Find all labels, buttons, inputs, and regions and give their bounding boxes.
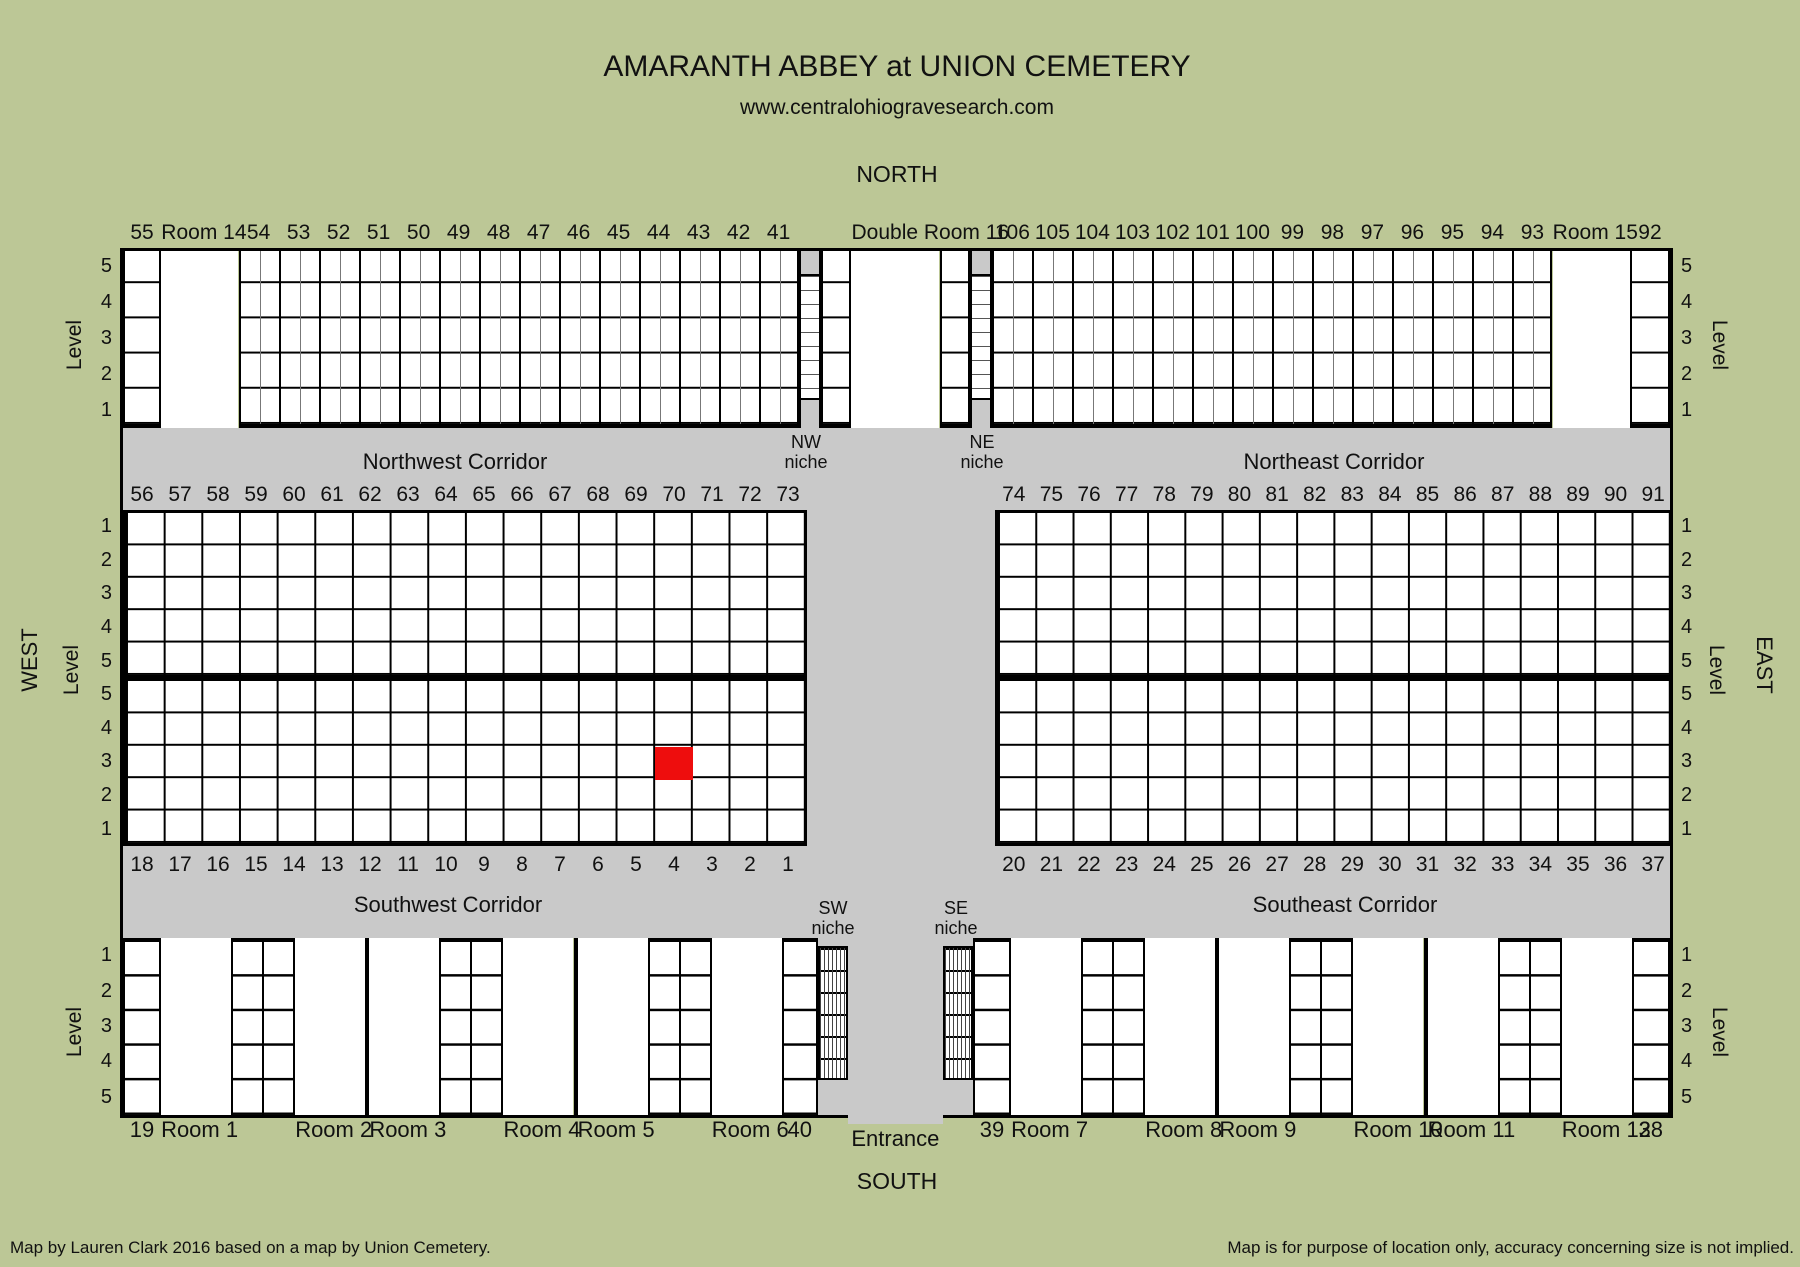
column-number: 92 — [1630, 220, 1670, 248]
column-number: 82 — [1296, 482, 1334, 508]
spacer — [231, 1115, 295, 1145]
north-crypt-column — [559, 248, 599, 428]
room-14-unit: Room 14 — [161, 220, 238, 428]
crypt-column — [940, 248, 970, 428]
spacer — [648, 1115, 712, 1145]
level-number: 2 — [86, 356, 116, 392]
column-number: 85 — [1409, 482, 1447, 508]
north-crypt-column — [1472, 248, 1512, 428]
crypt-column-unit — [821, 220, 851, 428]
level-number: 3 — [86, 1009, 116, 1044]
north-crypt-column — [1112, 248, 1152, 428]
column-number: 76 — [1070, 482, 1108, 508]
spacer — [1498, 1115, 1562, 1145]
room-2-unit: Room 2 — [295, 938, 365, 1145]
column-number: 39 — [973, 1115, 1011, 1145]
level-number: 4 — [1677, 284, 1707, 320]
level-number: 2 — [1677, 973, 1707, 1008]
footer-disclaimer: Map is for purpose of location only, acc… — [1227, 1238, 1794, 1258]
column-number: 41 — [759, 220, 799, 248]
level-label-north-left: Level — [63, 300, 87, 390]
sw-niche-line1: SW — [793, 898, 873, 918]
column-number: 37 — [1634, 852, 1672, 878]
north-crypt-column-unit: 5453525150494847464544434241 — [239, 220, 799, 428]
crypt-column-92-unit: 92 — [1630, 220, 1670, 428]
level-number: 1 — [1677, 392, 1707, 428]
column-number: 40 — [782, 1115, 818, 1145]
column-number: 32 — [1446, 852, 1484, 878]
entrance-label: Entrance — [848, 1124, 943, 1154]
ne-niche-column-unit — [970, 220, 992, 428]
room-7 — [1011, 938, 1081, 1115]
level-number: 3 — [86, 320, 116, 356]
room-8-unit: Room 8 — [1145, 938, 1215, 1145]
room-label: Double Room 16 — [851, 220, 939, 248]
column-number: 56 — [123, 482, 161, 508]
nw-south-bank — [126, 681, 804, 843]
niche-hatched-strip — [818, 946, 848, 1080]
north-crypt-column — [239, 248, 279, 428]
building-north-wall — [120, 248, 1673, 251]
level-number: 3 — [86, 577, 116, 611]
column-number: 38 — [1632, 1115, 1670, 1145]
se-niche-column — [943, 938, 973, 1115]
column-number: 61 — [313, 482, 351, 508]
niche-cap-bottom — [801, 400, 819, 428]
spacer — [943, 1115, 973, 1145]
crypt-column-40-unit: 40 — [782, 938, 818, 1145]
north-crypt-column — [279, 248, 319, 428]
column-number: 63 — [389, 482, 427, 508]
column-number: 67 — [541, 482, 579, 508]
column-number: 15 — [237, 852, 275, 878]
column-number: 51 — [359, 220, 399, 248]
column-number: 18 — [123, 852, 161, 878]
level-number: 4 — [86, 712, 116, 746]
southwest-corridor-label: Southwest Corridor — [198, 891, 698, 919]
ne-niche-column — [970, 248, 992, 428]
north-crypt-column — [359, 248, 399, 428]
middle-levels-left: 1234554321 — [86, 510, 116, 846]
level-number: 2 — [86, 973, 116, 1008]
room-1 — [161, 938, 231, 1115]
column-number — [940, 220, 970, 248]
dcol-unit — [1081, 938, 1145, 1145]
ne-south-bank — [998, 681, 1669, 843]
column-number: 35 — [1559, 852, 1597, 878]
crypt-double-column — [1289, 938, 1353, 1115]
level-label-middle-left: Level — [60, 625, 84, 715]
column-number: 28 — [1296, 852, 1334, 878]
level-number: 5 — [86, 678, 116, 712]
column-number: 101 — [1192, 220, 1232, 248]
column-number: 16 — [199, 852, 237, 878]
column-number: 10 — [427, 852, 465, 878]
column-number: 3 — [693, 852, 731, 878]
column-number: 62 — [351, 482, 389, 508]
column-number: 50 — [399, 220, 439, 248]
north-levels-left: 54321 — [86, 248, 116, 428]
north-crypt-column — [1072, 248, 1112, 428]
northwest-corridor-label: Northwest Corridor — [205, 448, 705, 476]
level-number: 3 — [1677, 745, 1707, 779]
column-number: 13 — [313, 852, 351, 878]
column-number: 11 — [389, 852, 427, 878]
room-10-unit: Room 10 — [1353, 938, 1423, 1145]
column-number: 70 — [655, 482, 693, 508]
level-label-south-right: Level — [1707, 987, 1731, 1077]
room-label: Room 3 — [369, 1115, 439, 1145]
column-number: 71 — [693, 482, 731, 508]
ne-niche-line2: niche — [942, 452, 1022, 472]
south-levels-right: 12345 — [1677, 938, 1707, 1115]
level-number: 1 — [1677, 812, 1707, 846]
northeast-crypt-grid — [995, 510, 1672, 846]
website-url: www.centralohiogravesearch.com — [0, 96, 1794, 120]
column-number: 8 — [503, 852, 541, 878]
north-crypt-column — [759, 248, 799, 428]
dcol-unit — [1289, 938, 1353, 1145]
column-number: 17 — [161, 852, 199, 878]
room-10 — [1353, 938, 1423, 1115]
column-number: 68 — [579, 482, 617, 508]
northeast-corridor-label: Northeast Corridor — [1084, 448, 1584, 476]
crypt-column-38 — [1632, 938, 1670, 1115]
room-5 — [578, 938, 648, 1115]
column-number: 48 — [479, 220, 519, 248]
room-label: Room 14 — [161, 220, 238, 248]
room-11 — [1428, 938, 1498, 1115]
spacer — [1289, 1115, 1353, 1145]
level-number: 1 — [86, 510, 116, 544]
crypt-double-column — [1498, 938, 1562, 1115]
room-15 — [1553, 248, 1630, 428]
nw-niche-line1: NW — [766, 432, 846, 452]
level-number: 4 — [1677, 611, 1707, 645]
column-number: 66 — [503, 482, 541, 508]
column-number: 91 — [1634, 482, 1672, 508]
level-number: 5 — [86, 1080, 116, 1115]
central-hall — [807, 428, 995, 938]
dcol-unit — [231, 938, 295, 1145]
cemetery-map: AMARANTH ABBEY at UNION CEMETERY www.cen… — [0, 0, 1800, 1267]
column-number: 73 — [769, 482, 807, 508]
level-number: 5 — [1677, 644, 1707, 678]
room-3-unit: Room 3 — [369, 938, 439, 1145]
north-crypt-columns — [992, 248, 1552, 428]
nw-column-numbers: 565758596061626364656667686970717273 — [123, 482, 807, 508]
level-number: 1 — [86, 812, 116, 846]
level-label-middle-right: Level — [1704, 625, 1728, 715]
column-number: 49 — [439, 220, 479, 248]
column-number: 87 — [1484, 482, 1522, 508]
se-niche-column-unit — [943, 938, 973, 1145]
room-2 — [295, 938, 365, 1115]
niche-cells — [972, 274, 990, 400]
column-number: 58 — [199, 482, 237, 508]
sw-column-numbers: 181716151413121110987654321 — [123, 852, 807, 878]
north-crypt-column — [439, 248, 479, 428]
room-8 — [1145, 938, 1215, 1115]
room-15-unit: Room 15 — [1553, 220, 1630, 428]
niche-hatched-strip — [943, 946, 973, 1080]
se-niche-line2: niche — [916, 918, 996, 938]
crypt-column-19-unit: 19 — [123, 938, 161, 1145]
level-number: 4 — [86, 1044, 116, 1079]
room-label: Room 6 — [712, 1115, 782, 1145]
crypt-column-19 — [123, 938, 161, 1115]
column-number: 45 — [599, 220, 639, 248]
column-number: 100 — [1232, 220, 1272, 248]
sw-niche-column-unit — [818, 938, 848, 1145]
crypt-double-column — [231, 938, 295, 1115]
level-number: 3 — [86, 745, 116, 779]
room-12 — [1562, 938, 1632, 1115]
column-number: 47 — [519, 220, 559, 248]
level-number: 3 — [1677, 577, 1707, 611]
level-number: 2 — [1677, 779, 1707, 813]
column-number: 103 — [1112, 220, 1152, 248]
column-number: 55 — [123, 220, 161, 248]
column-number: 64 — [427, 482, 465, 508]
column-number: 65 — [465, 482, 503, 508]
column-number: 1 — [769, 852, 807, 878]
ne-north-bank — [998, 513, 1669, 675]
compass-west: WEST — [18, 615, 42, 705]
page-title: AMARANTH ABBEY at UNION CEMETERY — [0, 50, 1794, 84]
north-crypt-column — [479, 248, 519, 428]
niche-cap-top — [801, 248, 819, 274]
niche-cap-top — [972, 248, 990, 274]
north-crypt-band: 55Room 145453525150494847464544434241Dou… — [123, 220, 1670, 428]
se-niche-line1: SE — [916, 898, 996, 918]
column-number: 59 — [237, 482, 275, 508]
column-number: 19 — [123, 1115, 161, 1145]
column-number: 30 — [1371, 852, 1409, 878]
column-number — [821, 220, 851, 248]
nw-niche-column — [799, 248, 821, 428]
ne-niche-line1: NE — [942, 432, 1022, 452]
room-label: Room 12 — [1562, 1115, 1632, 1145]
building-south-wall-west — [120, 1115, 848, 1118]
niche-cap-bottom — [972, 400, 990, 428]
spacer — [799, 220, 821, 248]
room-11-unit: Room 11 — [1428, 938, 1498, 1145]
crypt-double-column — [1081, 938, 1145, 1115]
north-crypt-column — [1272, 248, 1312, 428]
room-label: Room 4 — [503, 1115, 573, 1145]
spacer — [439, 1115, 503, 1145]
column-number: 31 — [1409, 852, 1447, 878]
column-number: 29 — [1333, 852, 1371, 878]
room-7-unit: Room 7 — [1011, 938, 1081, 1145]
compass-south: SOUTH — [0, 1168, 1794, 1195]
level-number: 5 — [86, 248, 116, 284]
column-number: 20 — [995, 852, 1033, 878]
north-crypt-column — [1232, 248, 1272, 428]
column-number: 57 — [161, 482, 199, 508]
column-number: 54 — [239, 220, 279, 248]
north-crypt-column — [599, 248, 639, 428]
column-numbers: 10610510410310210110099989796959493 — [992, 220, 1552, 248]
spacer — [818, 1115, 848, 1145]
column-number: 90 — [1597, 482, 1635, 508]
column-number: 74 — [995, 482, 1033, 508]
building-west-wall — [120, 248, 123, 1118]
footer-credit: Map by Lauren Clark 2016 based on a map … — [10, 1238, 491, 1258]
crypt-column-92 — [1630, 248, 1670, 428]
crypt-double-column — [439, 938, 503, 1115]
entrance-passage-unit: Entrance — [848, 938, 943, 1154]
crypt-double-column — [648, 938, 712, 1115]
north-crypt-column — [319, 248, 359, 428]
column-number: 44 — [639, 220, 679, 248]
double-room-16 — [851, 248, 939, 428]
room-label: Room 10 — [1353, 1115, 1423, 1145]
room-9-unit: Room 9 — [1219, 938, 1289, 1145]
column-numbers: 5453525150494847464544434241 — [239, 220, 799, 248]
middle-levels-right: 1234554321 — [1677, 510, 1707, 846]
column-number: 14 — [275, 852, 313, 878]
column-number: 77 — [1108, 482, 1146, 508]
room-label: Room 8 — [1145, 1115, 1215, 1145]
level-number: 3 — [1677, 1009, 1707, 1044]
column-number: 34 — [1522, 852, 1560, 878]
level-number: 4 — [1677, 1044, 1707, 1079]
column-number: 84 — [1371, 482, 1409, 508]
north-crypt-column — [1312, 248, 1352, 428]
north-crypt-column — [1392, 248, 1432, 428]
level-number: 5 — [1677, 678, 1707, 712]
north-crypt-column — [992, 248, 1032, 428]
column-number: 83 — [1333, 482, 1371, 508]
nw-niche-line2: niche — [766, 452, 846, 472]
room-5-unit: Room 5 — [578, 938, 648, 1145]
ne-niche-label: NE niche — [942, 432, 1022, 472]
sw-niche-line2: niche — [793, 918, 873, 938]
sw-niche-label: SW niche — [793, 898, 873, 938]
nw-niche-column-unit — [799, 220, 821, 428]
crypt-column-39-unit: 39 — [973, 938, 1011, 1145]
north-levels-right: 54321 — [1677, 248, 1707, 428]
column-number: 96 — [1392, 220, 1432, 248]
north-crypt-column — [1032, 248, 1072, 428]
sw-niche-column — [818, 938, 848, 1115]
column-number: 24 — [1145, 852, 1183, 878]
crypt-column-55 — [123, 248, 161, 428]
dcol-unit — [439, 938, 503, 1145]
level-number: 2 — [86, 779, 116, 813]
room-label: Room 11 — [1428, 1115, 1498, 1145]
north-crypt-column — [639, 248, 679, 428]
north-crypt-column — [1192, 248, 1232, 428]
column-number: 102 — [1152, 220, 1192, 248]
column-number: 86 — [1446, 482, 1484, 508]
compass-north: NORTH — [0, 161, 1794, 188]
column-number: 80 — [1221, 482, 1259, 508]
level-number: 5 — [86, 644, 116, 678]
room-label: Room 2 — [295, 1115, 365, 1145]
room-3 — [369, 938, 439, 1115]
level-number: 1 — [86, 392, 116, 428]
north-crypt-column — [1432, 248, 1472, 428]
north-crypt-column — [519, 248, 559, 428]
double-room-16-unit: Double Room 16 — [851, 220, 939, 428]
column-number: 22 — [1070, 852, 1108, 878]
room-label: Room 7 — [1011, 1115, 1081, 1145]
spacer — [1081, 1115, 1145, 1145]
column-number: 97 — [1352, 220, 1392, 248]
column-number: 72 — [731, 482, 769, 508]
column-number: 2 — [731, 852, 769, 878]
highlighted-crypt — [655, 747, 693, 780]
level-number: 1 — [1677, 938, 1707, 973]
column-number: 7 — [541, 852, 579, 878]
column-number: 21 — [1033, 852, 1071, 878]
room-label: Room 5 — [578, 1115, 648, 1145]
room-6-unit: Room 6 — [712, 938, 782, 1145]
south-levels-left: 12345 — [86, 938, 116, 1115]
north-crypt-column — [1512, 248, 1552, 428]
room-4-unit: Room 4 — [503, 938, 573, 1145]
niche-cells — [801, 274, 819, 400]
level-number: 5 — [1677, 248, 1707, 284]
column-number: 89 — [1559, 482, 1597, 508]
column-number: 81 — [1258, 482, 1296, 508]
north-crypt-column — [719, 248, 759, 428]
room-14 — [161, 248, 238, 428]
nw-north-bank — [126, 513, 804, 675]
column-number: 5 — [617, 852, 655, 878]
north-crypt-column-unit: 10610510410310210110099989796959493 — [992, 220, 1552, 428]
column-number: 12 — [351, 852, 389, 878]
northwest-crypt-grid — [123, 510, 807, 846]
column-number: 60 — [275, 482, 313, 508]
room-label: Room 15 — [1553, 220, 1630, 248]
room-12-unit: Room 12 — [1562, 938, 1632, 1145]
dcol-unit — [648, 938, 712, 1145]
room-label: Room 1 — [161, 1115, 231, 1145]
level-number: 2 — [1677, 544, 1707, 578]
level-number: 4 — [86, 611, 116, 645]
ne-column-numbers: 747576777879808182838485868788899091 — [995, 482, 1672, 508]
room-1-unit: Room 1 — [161, 938, 231, 1145]
column-number: 43 — [679, 220, 719, 248]
nw-niche-label: NW niche — [766, 432, 846, 472]
column-number: 25 — [1183, 852, 1221, 878]
level-number: 5 — [1677, 1080, 1707, 1115]
spacer — [970, 220, 992, 248]
column-number: 93 — [1512, 220, 1552, 248]
southeast-corridor-label: Southeast Corridor — [1095, 891, 1595, 919]
building-east-wall — [1670, 248, 1673, 1118]
se-niche-label: SE niche — [916, 898, 996, 938]
column-number: 52 — [319, 220, 359, 248]
column-number: 6 — [579, 852, 617, 878]
column-number: 42 — [719, 220, 759, 248]
crypt-column-39 — [973, 938, 1011, 1115]
level-number: 2 — [1677, 356, 1707, 392]
column-number: 94 — [1472, 220, 1512, 248]
north-crypt-column — [1152, 248, 1192, 428]
column-number: 46 — [559, 220, 599, 248]
se-column-numbers: 202122232425262728293031323334353637 — [995, 852, 1672, 878]
column-number: 26 — [1221, 852, 1259, 878]
column-number: 27 — [1258, 852, 1296, 878]
column-number: 104 — [1072, 220, 1112, 248]
room-6 — [712, 938, 782, 1115]
compass-east: EAST — [1752, 620, 1776, 710]
